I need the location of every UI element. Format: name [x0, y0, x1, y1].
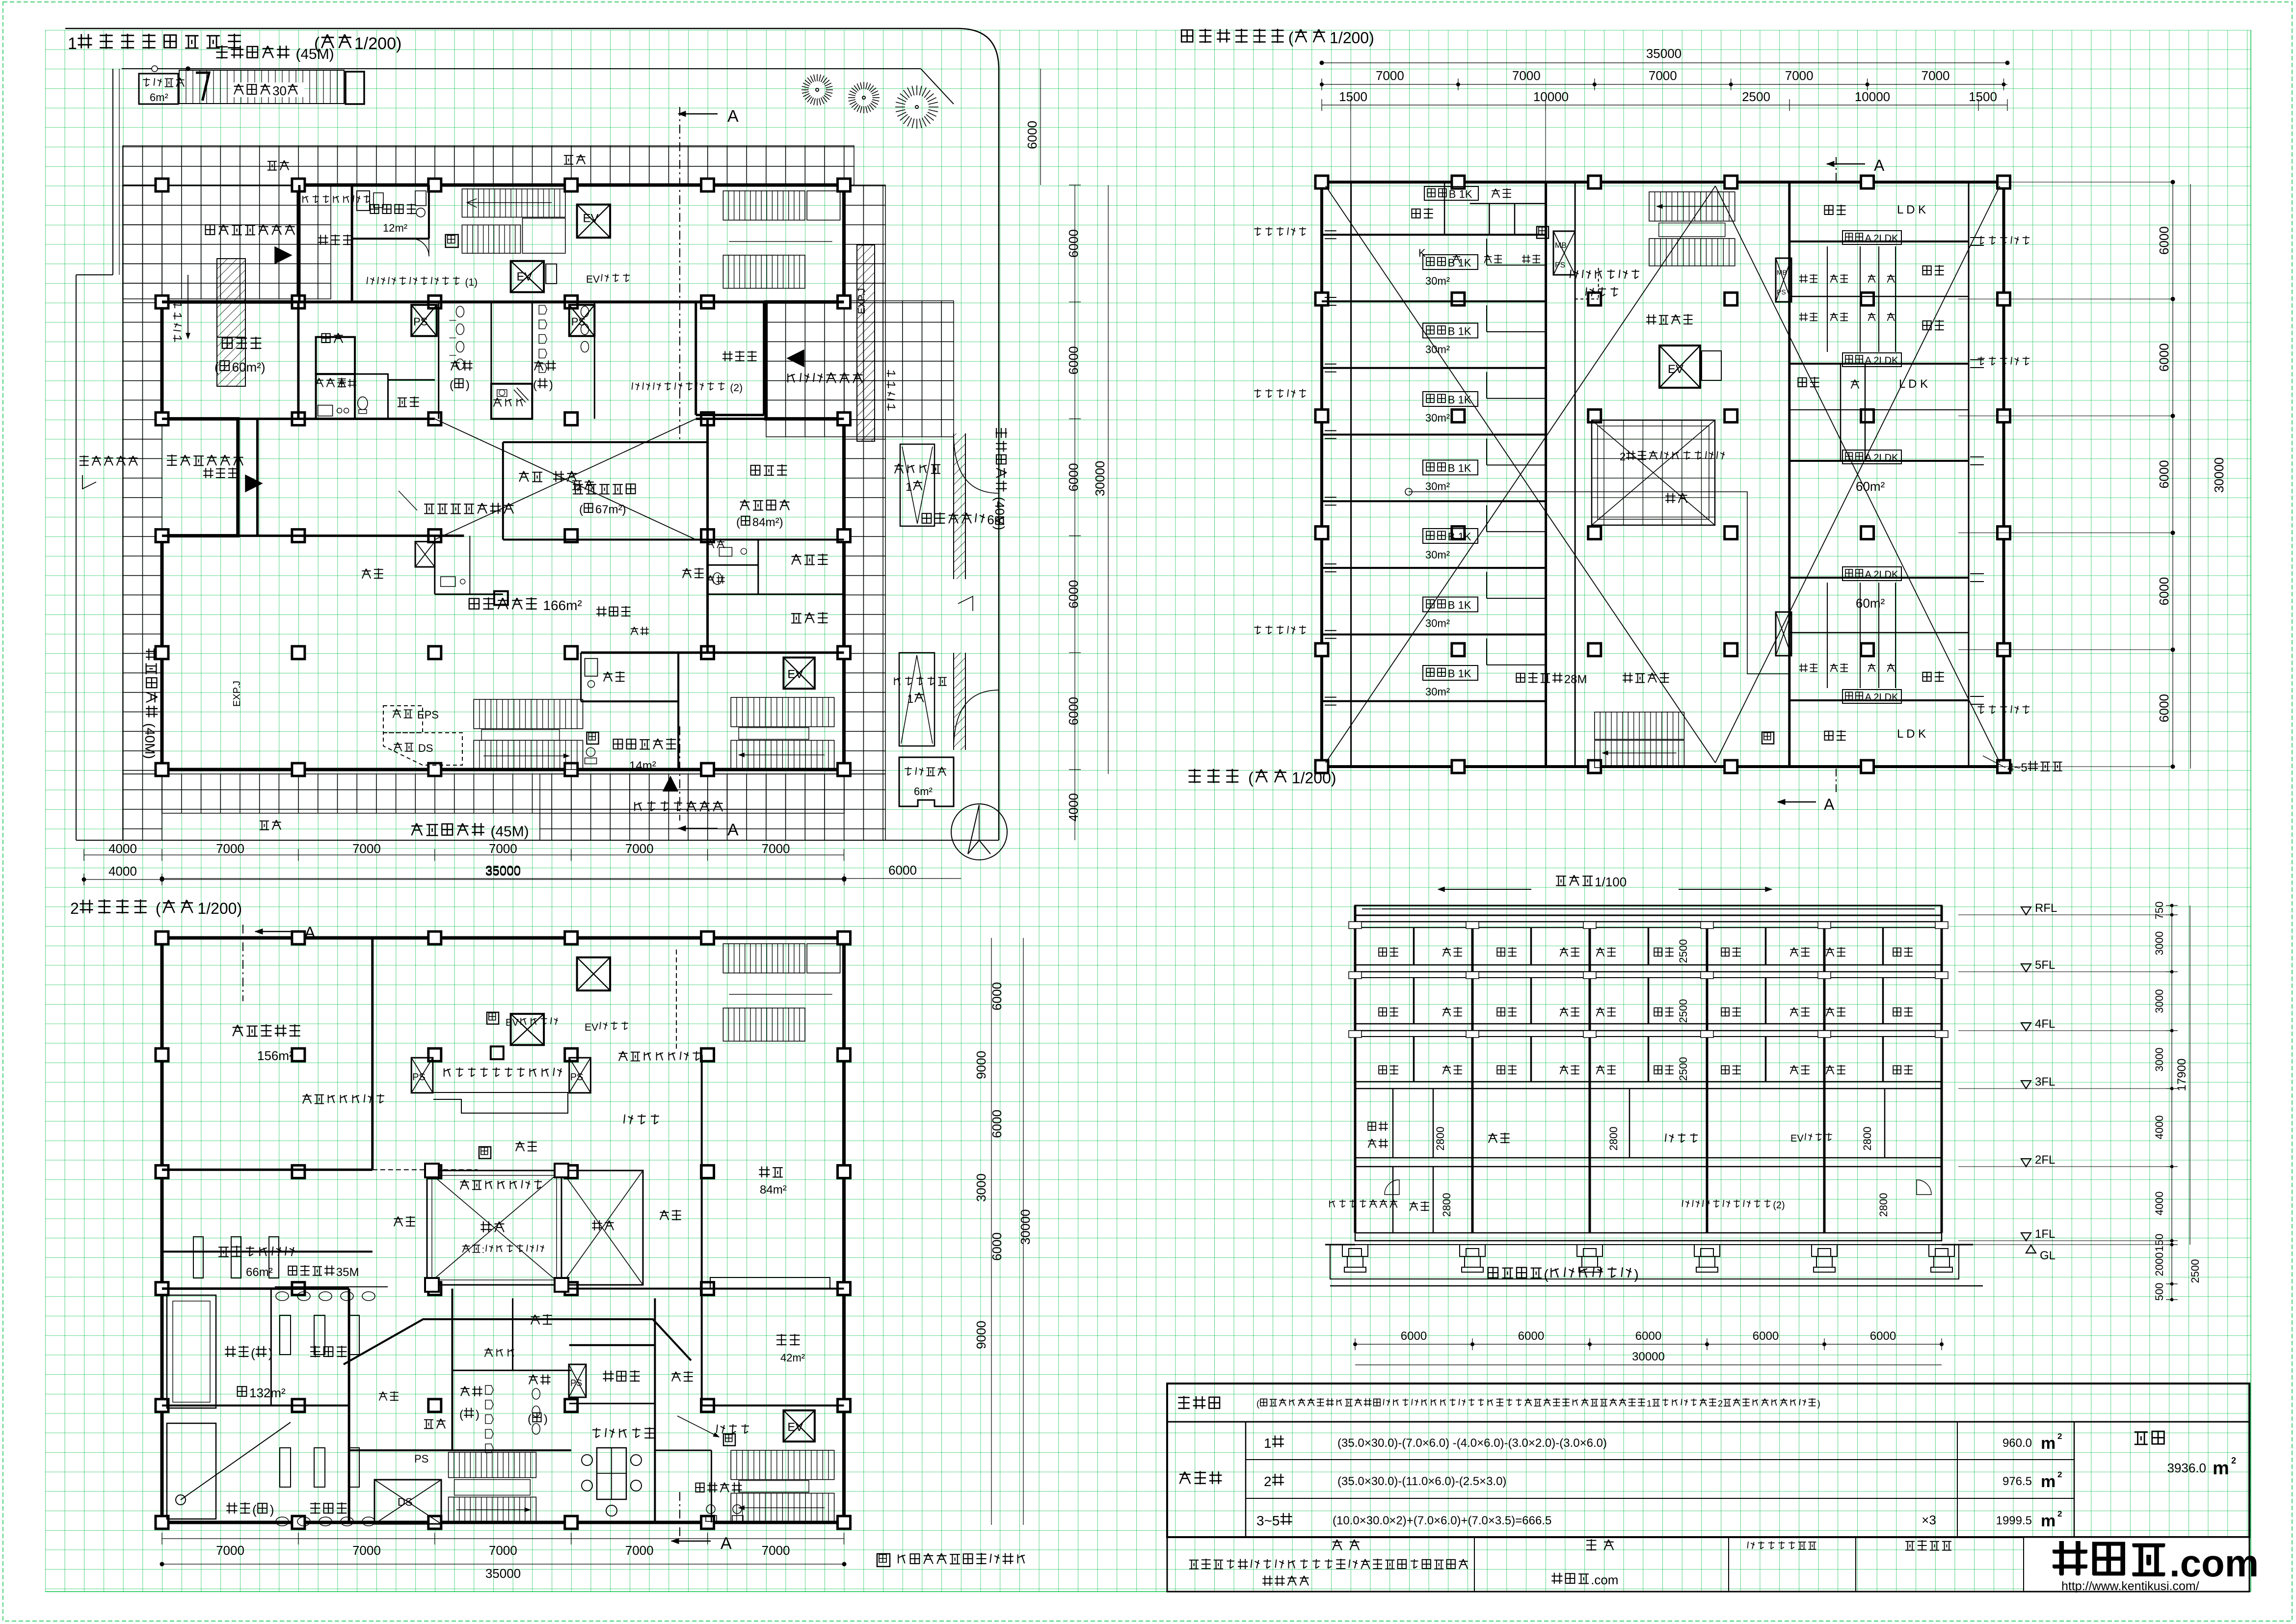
svg-text:EV: EV	[586, 274, 600, 285]
svg-text:7000: 7000	[1785, 68, 1814, 83]
svg-text:7000: 7000	[216, 841, 244, 856]
svg-text:1: 1	[907, 692, 913, 706]
svg-text:1999.5: 1999.5	[1996, 1514, 2032, 1527]
svg-text:30000: 30000	[1018, 1209, 1033, 1245]
svg-text:14m²: 14m²	[629, 759, 656, 772]
svg-text:30m²: 30m²	[1425, 686, 1450, 698]
svg-text:67m²): 67m²)	[595, 503, 626, 516]
svg-text:1/100: 1/100	[1595, 875, 1627, 889]
svg-text:(40M): (40M)	[142, 719, 158, 759]
svg-text:976.5: 976.5	[2002, 1475, 2032, 1488]
svg-text:A: A	[304, 924, 316, 942]
svg-text:): )	[544, 1412, 548, 1426]
svg-text:156m²: 156m²	[257, 1048, 294, 1063]
svg-text:6000: 6000	[888, 863, 917, 878]
svg-text:A: A	[727, 107, 739, 126]
svg-text:1500: 1500	[1969, 89, 1997, 104]
svg-text:30m²: 30m²	[1425, 275, 1450, 287]
svg-text:(: (	[736, 516, 740, 529]
svg-text:6000: 6000	[1066, 697, 1081, 725]
svg-text:4000: 4000	[1066, 793, 1081, 822]
svg-text:7000: 7000	[625, 841, 654, 856]
svg-text:EV: EV	[1790, 1133, 1804, 1144]
svg-text:http://www.kentikusi.com/: http://www.kentikusi.com/	[2061, 1579, 2199, 1593]
svg-text:PS: PS	[1777, 288, 1786, 296]
svg-text:RFL: RFL	[2035, 902, 2057, 915]
svg-text:30m²: 30m²	[1425, 549, 1450, 561]
svg-text:PS: PS	[414, 1453, 428, 1465]
svg-text:m: m	[2041, 1434, 2056, 1453]
svg-text:(: (	[533, 378, 537, 392]
svg-text:6000: 6000	[1025, 121, 1040, 149]
svg-text:3000: 3000	[2153, 989, 2165, 1013]
svg-text:6m²: 6m²	[150, 91, 168, 104]
svg-text:3936.0: 3936.0	[2167, 1461, 2206, 1475]
svg-text:6000: 6000	[2157, 577, 2171, 606]
svg-text:PS: PS	[571, 316, 586, 328]
svg-text:7000: 7000	[1376, 68, 1404, 83]
svg-text:.com: .com	[1591, 1572, 1618, 1587]
svg-text:(45M): (45M)	[486, 824, 529, 840]
svg-text:6000: 6000	[2157, 460, 2171, 489]
svg-text:6000: 6000	[1870, 1330, 1896, 1343]
svg-text:166m²: 166m²	[539, 598, 582, 613]
svg-text:1: 1	[68, 34, 77, 53]
svg-text:132m²: 132m²	[249, 1385, 286, 1400]
svg-text:(: (	[1288, 29, 1294, 47]
svg-text:(2): (2)	[1773, 1200, 1785, 1211]
svg-text:DS: DS	[398, 1496, 413, 1508]
svg-text:(40M): (40M)	[992, 493, 1007, 530]
svg-text:(: (	[1256, 1398, 1260, 1409]
svg-text:3000: 3000	[2153, 1048, 2165, 1072]
svg-text:DS: DS	[415, 742, 433, 754]
svg-text:(: (	[251, 1346, 255, 1360]
svg-text:28M: 28M	[1564, 673, 1587, 686]
svg-text:2: 2	[1264, 1474, 1272, 1489]
svg-text:12m²: 12m²	[383, 222, 407, 234]
svg-text:9000: 9000	[974, 1321, 988, 1349]
svg-text:9000: 9000	[974, 1051, 988, 1079]
svg-text:B 1K: B 1K	[1448, 325, 1471, 338]
svg-text:3~5: 3~5	[1256, 1513, 1280, 1528]
svg-text:35000: 35000	[485, 864, 521, 879]
svg-text:6000: 6000	[1635, 1330, 1661, 1343]
svg-text:EV: EV	[583, 212, 599, 225]
svg-text:42m²: 42m²	[780, 1352, 805, 1364]
svg-text:7000: 7000	[1649, 68, 1677, 83]
svg-text:(: (	[214, 360, 219, 374]
svg-text:(: (	[459, 1408, 463, 1421]
svg-text:B 1K: B 1K	[1449, 188, 1472, 200]
svg-text:(: (	[450, 378, 454, 392]
svg-text:EV: EV	[506, 1017, 519, 1028]
svg-text:): )	[1634, 1267, 1638, 1282]
svg-text:35000: 35000	[485, 1566, 521, 1581]
svg-text::: :	[482, 1245, 485, 1255]
svg-text:(45M): (45M)	[292, 46, 334, 62]
svg-text:2500: 2500	[1677, 939, 1689, 963]
svg-text:L D K: L D K	[1897, 203, 1926, 216]
svg-text:84m²): 84m²)	[752, 516, 783, 529]
svg-text:2: 2	[2057, 1509, 2062, 1518]
svg-text:2500: 2500	[2189, 1259, 2201, 1283]
svg-text:30000: 30000	[1632, 1350, 1665, 1363]
svg-text:PS: PS	[1555, 261, 1565, 269]
svg-text:B 1K: B 1K	[1448, 462, 1471, 475]
svg-text:4000: 4000	[108, 864, 137, 879]
svg-text:m: m	[2041, 1512, 2056, 1530]
svg-text:500: 500	[2153, 1283, 2165, 1301]
svg-text:×3: ×3	[1922, 1513, 1936, 1527]
svg-text:6000: 6000	[1401, 1330, 1427, 1343]
svg-text:m: m	[2213, 1458, 2229, 1479]
svg-text:): )	[476, 1408, 480, 1421]
svg-text:30m²: 30m²	[1425, 617, 1450, 630]
svg-text:EV: EV	[1668, 363, 1683, 376]
svg-text:3000: 3000	[974, 1173, 988, 1202]
svg-text:7000: 7000	[216, 1543, 244, 1558]
svg-text:A 2LDK: A 2LDK	[1865, 692, 1898, 703]
svg-text:2800: 2800	[1441, 1193, 1453, 1217]
svg-text:A 2LDK: A 2LDK	[1865, 233, 1898, 244]
svg-text:35M: 35M	[336, 1266, 359, 1279]
svg-text:2500: 2500	[1742, 89, 1770, 104]
svg-text:7000: 7000	[762, 841, 790, 856]
svg-text:B 1K: B 1K	[1448, 667, 1471, 680]
svg-text:30m²: 30m²	[1425, 480, 1450, 493]
svg-text:2: 2	[1718, 1398, 1723, 1409]
svg-text:(: (	[579, 503, 583, 516]
svg-text:30000: 30000	[1093, 461, 1107, 496]
svg-text:960.0: 960.0	[2002, 1437, 2032, 1450]
svg-text:EV: EV	[787, 667, 803, 681]
svg-text:6000: 6000	[1066, 229, 1081, 258]
svg-text:6000: 6000	[1518, 1330, 1544, 1343]
svg-text:6000: 6000	[989, 1110, 1004, 1138]
svg-text:EV: EV	[585, 1022, 598, 1033]
svg-text:MB: MB	[1777, 268, 1787, 276]
svg-text:17900: 17900	[2175, 1059, 2189, 1092]
svg-text:(: (	[151, 900, 161, 917]
svg-text:A 2LDK: A 2LDK	[1865, 355, 1898, 366]
svg-text:35000: 35000	[1646, 46, 1682, 61]
svg-text:(35.0×30.0)-(11.0×6.0)-(2.5×3.: (35.0×30.0)-(11.0×6.0)-(2.5×3.0)	[1337, 1475, 1506, 1488]
svg-text:3000: 3000	[2153, 932, 2165, 956]
svg-text:1FL: 1FL	[2035, 1227, 2055, 1241]
svg-text:(: (	[528, 1412, 532, 1426]
svg-text:2800: 2800	[1861, 1127, 1873, 1151]
svg-text:L D K: L D K	[1899, 377, 1928, 391]
svg-text:2500: 2500	[1677, 999, 1689, 1023]
svg-text:6000: 6000	[1066, 463, 1081, 492]
svg-text:1/200): 1/200)	[197, 900, 242, 917]
svg-text:1/200): 1/200)	[1292, 769, 1336, 787]
svg-text:A: A	[727, 821, 739, 839]
svg-text:5FL: 5FL	[2035, 958, 2055, 972]
svg-text:(: (	[252, 1502, 257, 1517]
svg-text:30000: 30000	[2212, 457, 2226, 493]
svg-text:(: (	[1244, 769, 1254, 787]
svg-text:MB: MB	[1555, 241, 1567, 250]
svg-text:1/200): 1/200)	[354, 34, 401, 53]
svg-text:7000: 7000	[762, 1543, 790, 1558]
svg-text:4000: 4000	[2153, 1116, 2165, 1140]
svg-text:EV: EV	[787, 1420, 803, 1434]
svg-text:A: A	[1824, 796, 1835, 813]
svg-text:2: 2	[2057, 1432, 2062, 1441]
svg-text:L D K: L D K	[1897, 727, 1926, 741]
svg-text:EXP.J: EXP.J	[232, 681, 242, 707]
svg-text:): )	[466, 378, 470, 392]
svg-text:EXP.J: EXP.J	[856, 288, 867, 314]
svg-text:4~5: 4~5	[2007, 761, 2028, 774]
svg-text:(2): (2)	[727, 382, 743, 394]
svg-text:1500: 1500	[1339, 89, 1367, 104]
svg-text:7000: 7000	[352, 1543, 381, 1558]
svg-text:84m²: 84m²	[760, 1183, 787, 1197]
svg-text:): )	[1817, 1398, 1820, 1409]
svg-text:7000: 7000	[489, 1543, 517, 1558]
svg-text:2800: 2800	[1607, 1127, 1620, 1151]
svg-text:2000: 2000	[2153, 1252, 2165, 1277]
svg-text:(10.0×30.0×2)+(7.0×6.0)+(7.0×3: (10.0×30.0×2)+(7.0×6.0)+(7.0×3.5)=666.5	[1333, 1514, 1551, 1527]
svg-text:7000: 7000	[1922, 68, 1950, 83]
svg-text:m: m	[2041, 1472, 2056, 1491]
svg-text:EPS: EPS	[414, 709, 439, 721]
svg-text:1: 1	[1264, 1436, 1272, 1451]
svg-text:10000: 10000	[1533, 89, 1569, 104]
svg-text:PS: PS	[412, 1072, 426, 1083]
svg-text:1: 1	[1647, 1398, 1652, 1409]
svg-text:2: 2	[2057, 1470, 2062, 1479]
svg-text:EV: EV	[517, 270, 533, 284]
svg-text:7000: 7000	[489, 841, 517, 856]
svg-text:B 1K: B 1K	[1448, 599, 1471, 612]
svg-text:7000: 7000	[352, 841, 381, 856]
svg-text:1/200): 1/200)	[1330, 29, 1374, 47]
svg-text:6000: 6000	[989, 982, 1004, 1011]
svg-text:10000: 10000	[1855, 89, 1890, 104]
svg-text:6000: 6000	[2157, 226, 2171, 255]
svg-text:2: 2	[70, 900, 79, 917]
svg-text:4000: 4000	[2153, 1192, 2165, 1216]
svg-text:7000: 7000	[1512, 68, 1541, 83]
svg-text:30m²: 30m²	[1425, 344, 1450, 356]
svg-text:A: A	[721, 1534, 732, 1553]
svg-text:.com: .com	[2169, 1542, 2259, 1585]
svg-text:): )	[270, 1502, 274, 1517]
svg-text:7000: 7000	[625, 1543, 654, 1558]
svg-text:2: 2	[2231, 1456, 2236, 1465]
svg-text:4FL: 4FL	[2035, 1017, 2055, 1031]
svg-text:K: K	[1418, 247, 1426, 259]
svg-text:6000: 6000	[2157, 694, 2171, 722]
svg-text:2500: 2500	[1677, 1057, 1689, 1081]
svg-text:2800: 2800	[1877, 1193, 1890, 1217]
svg-text:4000: 4000	[108, 841, 137, 856]
svg-text:30m²: 30m²	[1425, 412, 1450, 424]
svg-text:PS: PS	[570, 1072, 584, 1083]
svg-text:): )	[549, 378, 553, 392]
svg-text:B 1K: B 1K	[1448, 394, 1471, 406]
svg-text:A: A	[1874, 157, 1885, 174]
svg-text:6000: 6000	[1753, 1330, 1779, 1343]
svg-text:30: 30	[272, 83, 287, 98]
svg-text:1: 1	[906, 480, 912, 494]
svg-text:(: (	[1544, 1267, 1549, 1282]
svg-text:60m²): 60m²)	[232, 360, 266, 374]
svg-text:60m²: 60m²	[1856, 596, 1885, 611]
svg-text:2800: 2800	[1434, 1127, 1446, 1151]
svg-text:B 1K: B 1K	[1448, 257, 1471, 269]
svg-text:PS: PS	[413, 316, 427, 328]
svg-text:A 2LDK: A 2LDK	[1865, 453, 1898, 463]
svg-text:PS: PS	[570, 1378, 582, 1388]
svg-text:2: 2	[1620, 451, 1626, 463]
svg-text:(1): (1)	[462, 277, 478, 288]
svg-text:): )	[268, 1346, 273, 1360]
svg-text:3FL: 3FL	[2035, 1075, 2055, 1089]
svg-text:6000: 6000	[1066, 580, 1081, 609]
svg-text:6000: 6000	[1066, 346, 1081, 374]
svg-text:6000: 6000	[2157, 343, 2171, 372]
svg-text:150: 150	[2153, 1234, 2165, 1252]
svg-text:(35.0×30.0)-(7.0×6.0) -(4.0×6.: (35.0×30.0)-(7.0×6.0) -(4.0×6.0)-(3.0×2.…	[1337, 1437, 1607, 1450]
svg-text:6000: 6000	[989, 1232, 1004, 1261]
svg-text:60m²: 60m²	[1856, 479, 1885, 494]
svg-text:2FL: 2FL	[2035, 1153, 2055, 1167]
svg-text:6m²: 6m²	[914, 785, 933, 798]
svg-text:750: 750	[2153, 902, 2165, 920]
svg-text:A 2LDK: A 2LDK	[1865, 569, 1898, 580]
svg-text:B 1K: B 1K	[1448, 531, 1471, 543]
svg-text:GL: GL	[2040, 1249, 2056, 1262]
